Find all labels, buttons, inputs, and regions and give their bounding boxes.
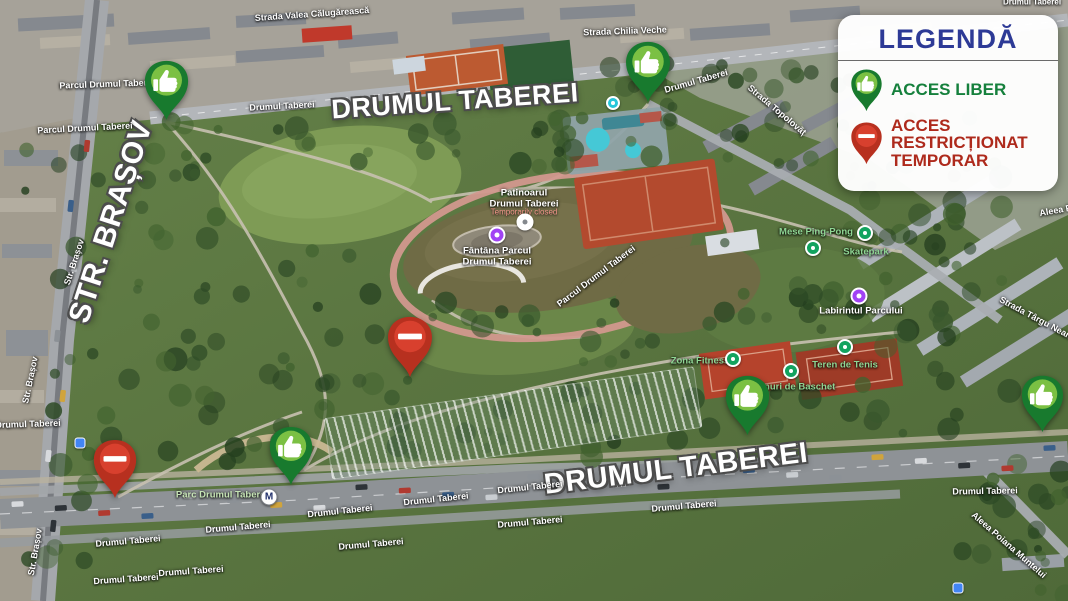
legend-divider bbox=[838, 60, 1058, 61]
access-restricted-marker[interactable] bbox=[92, 438, 138, 499]
legend-label-restricted: ACCES RESTRICȚIONAT TEMPORAR bbox=[891, 117, 1046, 169]
legend-panel: LEGENDĂ ACCES LIBER ACCES RESTRICȚIONAT … bbox=[838, 15, 1058, 191]
access-free-marker[interactable] bbox=[624, 40, 672, 103]
legend-label-free: ACCES LIBER bbox=[891, 81, 1006, 98]
legend-item-restricted: ACCES RESTRICȚIONAT TEMPORAR bbox=[850, 117, 1046, 169]
legend-item-free: ACCES LIBER bbox=[850, 68, 1046, 112]
access-restricted-marker[interactable] bbox=[386, 315, 434, 378]
access-free-marker[interactable] bbox=[1020, 374, 1065, 433]
access-free-marker[interactable] bbox=[143, 59, 190, 121]
legend-title: LEGENDĂ bbox=[850, 24, 1046, 55]
thumbs-up-pin-icon bbox=[850, 68, 883, 112]
access-free-marker[interactable] bbox=[268, 425, 314, 486]
no-entry-pin-icon bbox=[850, 121, 883, 165]
access-free-marker[interactable] bbox=[724, 374, 771, 436]
map-canvas[interactable]: DRUMUL TABEREIDRUMUL TABEREISTR. BRAȘOVS… bbox=[0, 0, 1068, 601]
